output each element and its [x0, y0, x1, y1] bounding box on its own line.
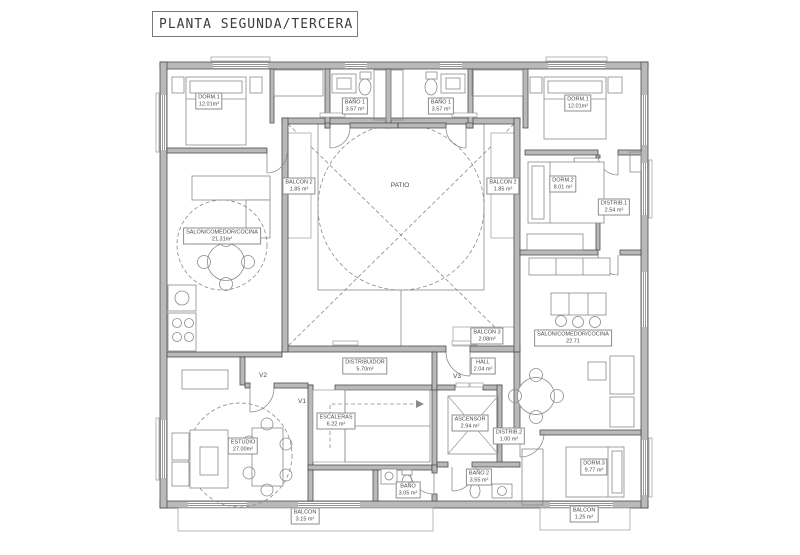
dining-table [518, 378, 555, 415]
toilet-tank [402, 470, 412, 475]
sink-counter [441, 74, 465, 93]
room-label-salon-right: SALON/COMEDOR/COCINA22.71 [534, 330, 612, 347]
window-top-2 [345, 63, 367, 68]
nightstand [172, 77, 184, 93]
window-right-4 [642, 440, 647, 495]
room-label-distrib2: DISTRIB.21.00 m² [493, 428, 525, 445]
window-right-1 [642, 95, 647, 145]
nightstand [250, 77, 262, 93]
window-left-2 [161, 420, 166, 478]
cabinet [172, 433, 189, 460]
window-top-3 [440, 63, 462, 68]
closet-dorm1-left [274, 70, 323, 96]
toilet [425, 79, 437, 95]
drawing-title-text: PLANTA SEGUNDA/TERCERA [159, 17, 353, 32]
label-v1: V1 [296, 398, 308, 407]
shower-left [374, 70, 386, 120]
sink-counter [381, 469, 397, 484]
floor-plan-drawing [0, 0, 800, 555]
patio-circle [318, 124, 484, 290]
room-label-dorm1-left: DORM.112.01m² [195, 93, 222, 110]
door-v2 [250, 388, 274, 412]
room-label-patio: PATIO [389, 182, 412, 191]
drawing-title: PLANTA SEGUNDA/TERCERA [152, 11, 358, 37]
dining-table [208, 244, 245, 281]
stool [573, 317, 584, 328]
door-bano1-left [330, 128, 350, 148]
balconies [178, 508, 630, 531]
room-label-ascensor: ASCENSOR2.94 m² [452, 415, 489, 432]
room-label-bano-pb: BAÑO3.05 m² [396, 482, 421, 499]
room-label-bano1-right: BAÑO 13.57 m² [428, 98, 454, 115]
furniture-dorm1-left [172, 77, 262, 145]
sofa [610, 397, 634, 427]
door-bano1-right [446, 128, 466, 148]
patio-core [288, 124, 514, 346]
window-bottom-2 [298, 502, 360, 507]
toilet-tank [360, 72, 371, 79]
room-label-dorm3: DORM.39.77 m² [580, 459, 607, 476]
label-v2: V2 [257, 372, 269, 381]
kitchen-sink-unit [168, 285, 196, 311]
kitchen-counter [529, 258, 610, 275]
sofa [192, 176, 270, 200]
desk [190, 430, 228, 488]
sink-counter [332, 74, 356, 93]
room-label-bano1-left: BAÑO 13.57 m² [342, 98, 368, 115]
elevator-door-leaf [456, 383, 469, 387]
room-label-balcon3: BALCON 32.08m² [470, 328, 503, 345]
room-label-estudio: ESTUDIO27.00m² [228, 438, 258, 455]
bed [186, 77, 246, 145]
window-top-4 [548, 63, 605, 68]
stairs-direction-arrow [416, 400, 424, 408]
shower-right [391, 70, 403, 120]
window-top-1 [213, 63, 268, 68]
stool [556, 316, 567, 327]
kitchen-island [551, 293, 606, 315]
room-label-dorm2: DORM.28.01 m² [549, 176, 576, 193]
sofa [610, 356, 634, 394]
bed [528, 162, 604, 223]
furniture-salon-left [168, 176, 270, 351]
room-label-distribuidor: DISTRIBUIDOR5.70m² [342, 358, 387, 375]
closet-dorm2 [527, 234, 583, 250]
window-right-3 [642, 272, 647, 327]
furniture-dorm2 [528, 162, 604, 223]
room-label-balcon-bottom-left: BALCON3.15 m² [291, 508, 320, 525]
closet-dorm3 [522, 449, 543, 505]
cabinet [172, 462, 189, 486]
furniture-bano1-left [332, 72, 371, 95]
room-label-escaleras: ESCALERAS6.22 m² [316, 413, 355, 430]
room-label-balcon-bottom-right: BALCON1.25 m² [570, 506, 599, 523]
toilet [359, 79, 371, 95]
closet-dorm1-right [472, 70, 523, 96]
room-label-balcon2-left: BALCON 21.85 m² [282, 178, 315, 195]
room-label-bano2: BAÑO 23.55 m² [466, 469, 492, 486]
toilet [470, 484, 480, 498]
side-table [588, 362, 606, 380]
room-label-dorm1-right: DORM.112.01m² [564, 95, 591, 112]
room-label-distrib1: DISTRIB.12.54 m² [598, 199, 630, 216]
window-left-1 [161, 95, 166, 150]
sofa [182, 370, 228, 389]
window-right-2 [642, 163, 647, 215]
room-label-salon-left: SALON/COMEDOR/COCINA21.31m² [183, 228, 261, 245]
room-label-balcon2-right: BALCON 21.85 m² [486, 178, 519, 195]
elevator-door-leaf [470, 383, 483, 387]
furniture-bano1-right [425, 72, 465, 95]
toilet-tank [426, 72, 437, 79]
label-v3: V3 [451, 373, 463, 382]
room-label-hall: HALL2.04 m² [471, 358, 496, 375]
stool [590, 317, 601, 328]
nightstand [608, 77, 622, 93]
kitchen-hob-unit [168, 313, 196, 351]
window-bottom-1 [188, 502, 247, 507]
floor-plan-canvas: PLANTA SEGUNDA/TERCERA [0, 0, 800, 555]
furniture-bano2 [470, 484, 512, 498]
nightstand [530, 77, 542, 93]
